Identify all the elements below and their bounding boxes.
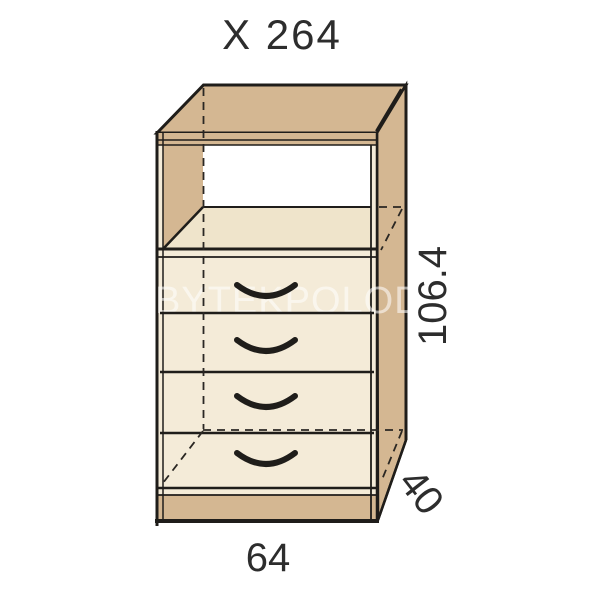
height-dimension-label: 106.4 — [411, 246, 455, 346]
furniture-diagram-canvas: BYTEKPOLODN X 264 106.4 40 64 — [0, 0, 600, 600]
product-code-label: X 264 — [222, 11, 342, 58]
top-panel — [157, 85, 406, 133]
watermark-text: BYTEKPOLODN — [155, 280, 451, 322]
top-front-band — [157, 133, 377, 145]
furniture-diagram: BYTEKPOLODN X 264 106.4 40 64 — [0, 0, 600, 600]
plinth — [157, 495, 377, 520]
depth-dimension-label: 40 — [390, 461, 452, 523]
width-dimension-label: 64 — [246, 536, 291, 580]
